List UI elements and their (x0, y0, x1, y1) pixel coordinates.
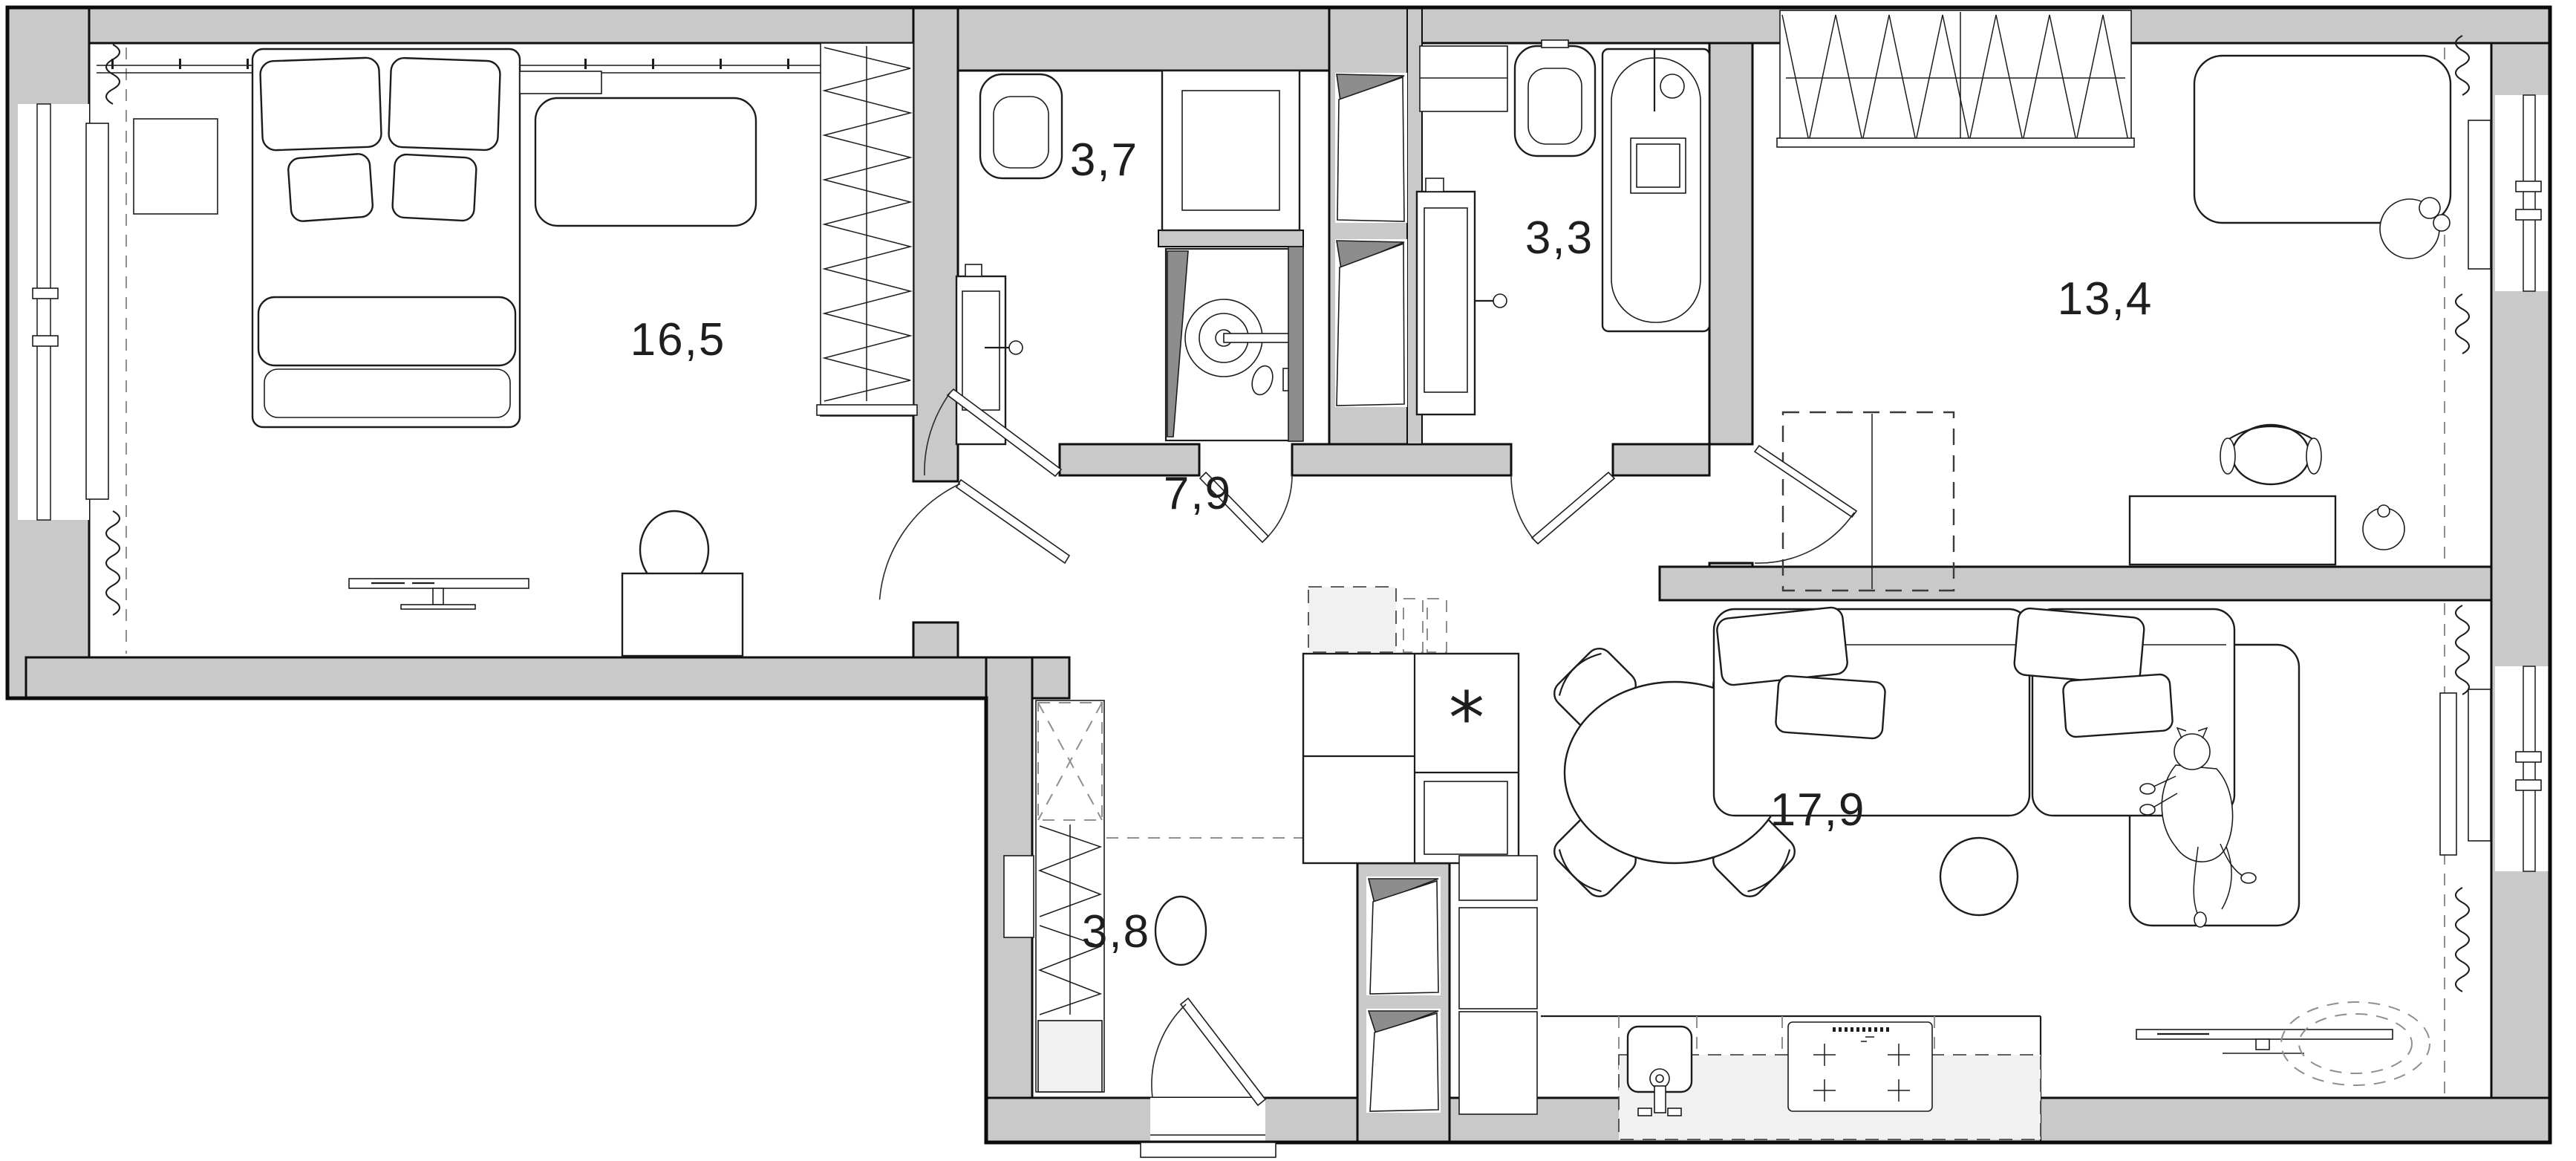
sink-vanity-2 (1417, 178, 1507, 414)
label-bathroom-33: 3,3 (1525, 212, 1594, 264)
bedroom-wardrobe (817, 43, 917, 416)
fridge-dashed (1308, 587, 1396, 652)
kitchen-units (1459, 856, 1537, 1114)
hob (1788, 1022, 1932, 1111)
rug-134 (2194, 56, 2451, 223)
bathtub (1602, 49, 1709, 331)
shelf-cabinet (1420, 46, 1507, 111)
floor-plan-canvas: * (0, 0, 2576, 1161)
label-bathroom-37: 3,7 (1070, 134, 1138, 186)
label-living-kitchen: 17,9 (1770, 784, 1866, 836)
shower (1162, 71, 1300, 230)
washing-machine (1185, 299, 1297, 397)
wardrobe-134 (1777, 10, 2134, 147)
dark-panel (1288, 247, 1303, 441)
living-room (1549, 606, 2456, 1085)
plant (2380, 198, 2450, 258)
bedroom (97, 43, 917, 656)
toilet-2 (1515, 40, 1595, 156)
pouf-entry (1155, 897, 1206, 965)
label-hallway: 7,9 (1164, 468, 1232, 519)
toilet (980, 74, 1062, 178)
kitchen-marker: * (1449, 677, 1484, 760)
bed (252, 49, 520, 427)
bedroom-rug (535, 98, 756, 226)
kitchen-block: * (1303, 654, 1519, 863)
floor-plan-page: * (0, 0, 2576, 1161)
tv-bench (2136, 1030, 2393, 1053)
desk-and-chair (2130, 425, 2404, 565)
tv-panel (2440, 693, 2456, 855)
label-bedroom: 16,5 (630, 314, 726, 365)
pouf-living (1940, 838, 2018, 915)
laundry-cell (1166, 247, 1303, 441)
rug-dashed-oval (2281, 1002, 2430, 1085)
entry-porch (1141, 1142, 1276, 1157)
label-entry: 3,8 (1082, 906, 1150, 957)
wardrobe-38 (1036, 700, 1104, 1092)
bedroom-tv (349, 579, 529, 609)
bathroom-37 (956, 71, 1300, 444)
dressing-table (622, 573, 743, 656)
bed-dashed (1783, 412, 1954, 591)
label-room-134: 13,4 (2058, 273, 2153, 325)
entry-38 (1004, 700, 1206, 1092)
